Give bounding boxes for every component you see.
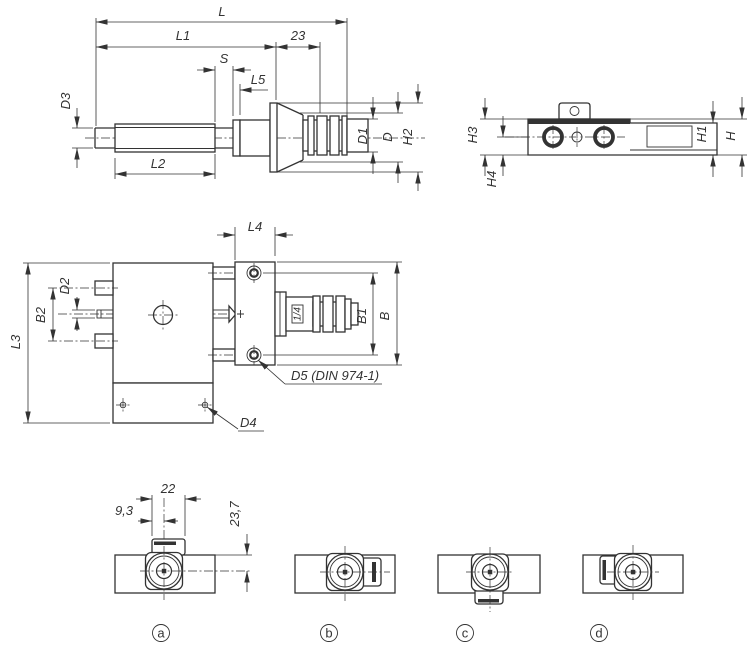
dim-label-D1: D1 [355,128,370,145]
dim-label-22: 22 [160,481,176,496]
serrated-top-face [528,119,630,124]
port-size-label: 1/4 [293,307,304,321]
variant-b-label: b [325,626,332,641]
shaft-side-view: L L1 23 S L5 D3 L2 D1 D [58,4,425,191]
variant-a-label: a [157,626,165,641]
technical-drawing: L L1 23 S L5 D3 L2 D1 D [0,0,750,648]
dim-label-D: D [380,132,395,141]
variant-d-view [583,545,683,600]
variant-c-view [438,547,540,612]
variant-a-view: 22 9,3 23,7 [115,481,252,600]
body-side-view: H3 H4 H1 H [465,97,747,187]
variant-d-label: d [595,626,602,641]
dim-label-D3: D3 [58,92,73,109]
nipple-cap [345,299,351,329]
thread-section [115,124,215,152]
cone-taper [277,103,303,172]
coupling-rib [317,116,327,155]
dim-label-H3: H3 [465,126,480,143]
variant-labels: a b c d [153,625,608,642]
dim-label-L: L [218,4,225,19]
mounting-tab [559,103,590,119]
dim-label-H1: H1 [694,126,709,143]
flange [270,103,277,172]
dim-label-L5: L5 [251,72,266,87]
dim-label-B2: B2 [33,306,48,323]
variant-c-slot [478,599,499,603]
dim-label-L1: L1 [176,28,190,43]
dim-label-B: B [377,311,392,320]
dim-label-H2: H2 [400,128,415,145]
dim-label-S: S [220,51,229,66]
top-view: D2 B2 L3 L4 1/4 [8,219,402,431]
variant-a-slot [154,542,176,546]
coupling-rib [330,116,339,155]
dim-label-L3: L3 [8,334,23,349]
dim-label-23: 23 [290,28,306,43]
dim-label-B1: B1 [354,308,369,324]
base-plate [113,383,213,423]
dim-label-L4: L4 [248,219,262,234]
collar [233,120,240,156]
coupling-rib [308,116,314,155]
nipple-rib [313,296,320,332]
medium-cylinder [240,120,270,156]
dim-label-D2: D2 [57,277,72,294]
dim-label-H: H [723,131,738,141]
dim-label-D4: D4 [240,415,257,430]
nipple-flange [275,292,286,336]
nipple-rib [336,296,345,332]
dim-label-23-7: 23,7 [227,501,242,528]
dim-label-H4: H4 [484,171,499,188]
technical-drawing-page: L L1 23 S L5 D3 L2 D1 D [0,0,750,648]
variant-d-slot [603,560,607,580]
variant-b-view [295,546,395,601]
dim-label-D5: D5 (DIN 974-1) [291,368,379,383]
variant-c-label: c [462,626,469,641]
dim-label-9-3: 9,3 [115,503,134,518]
coupling-rib [342,116,347,155]
nipple-rib [323,296,333,332]
dim-label-L2: L2 [151,156,166,171]
